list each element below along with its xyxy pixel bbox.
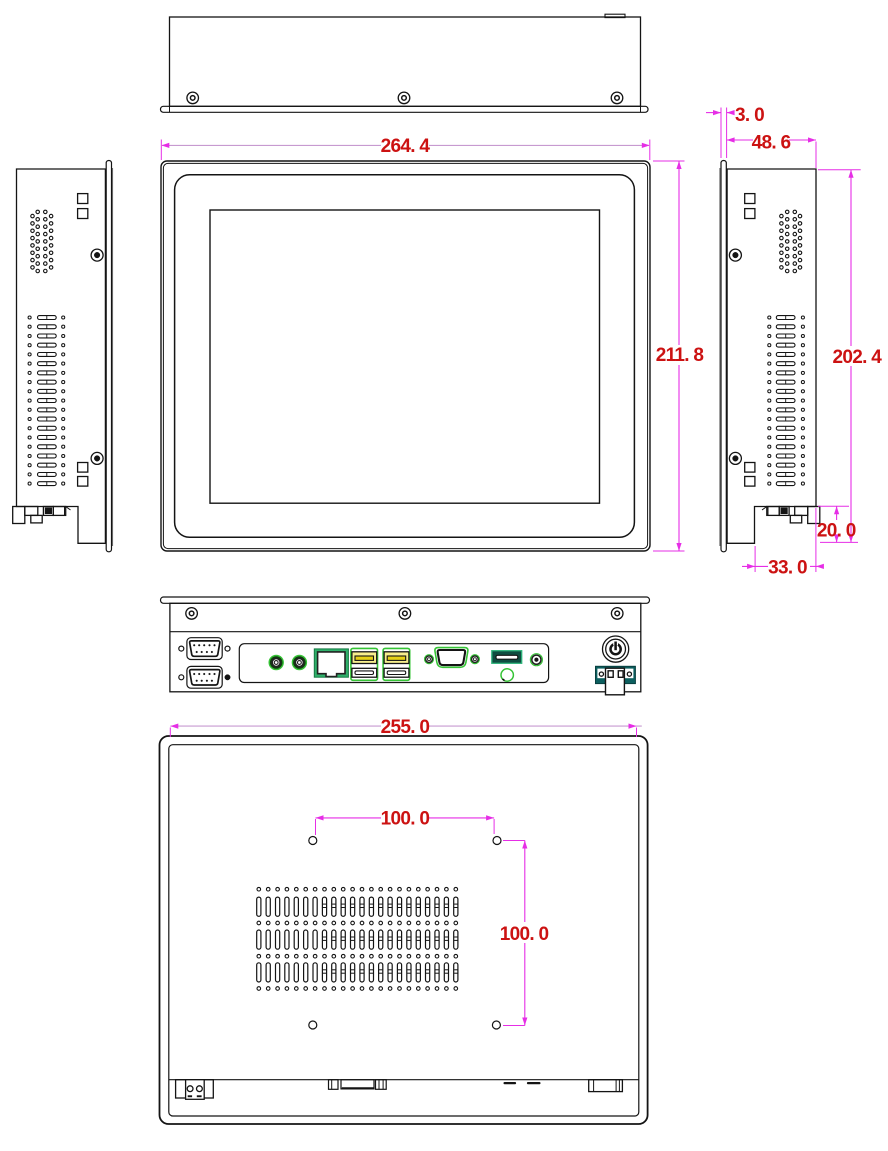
svg-text:211. 8: 211. 8 <box>656 345 704 366</box>
svg-text:20. 0: 20. 0 <box>817 521 856 542</box>
svg-text:255. 0: 255. 0 <box>381 717 430 738</box>
svg-text:100. 0: 100. 0 <box>381 809 430 830</box>
svg-text:3. 0: 3. 0 <box>735 105 764 126</box>
svg-text:33. 0: 33. 0 <box>768 558 807 579</box>
svg-text:264. 4: 264. 4 <box>381 136 431 157</box>
svg-text:202. 4: 202. 4 <box>832 347 882 368</box>
svg-text:100. 0: 100. 0 <box>500 924 549 945</box>
svg-text:48. 6: 48. 6 <box>752 133 791 154</box>
